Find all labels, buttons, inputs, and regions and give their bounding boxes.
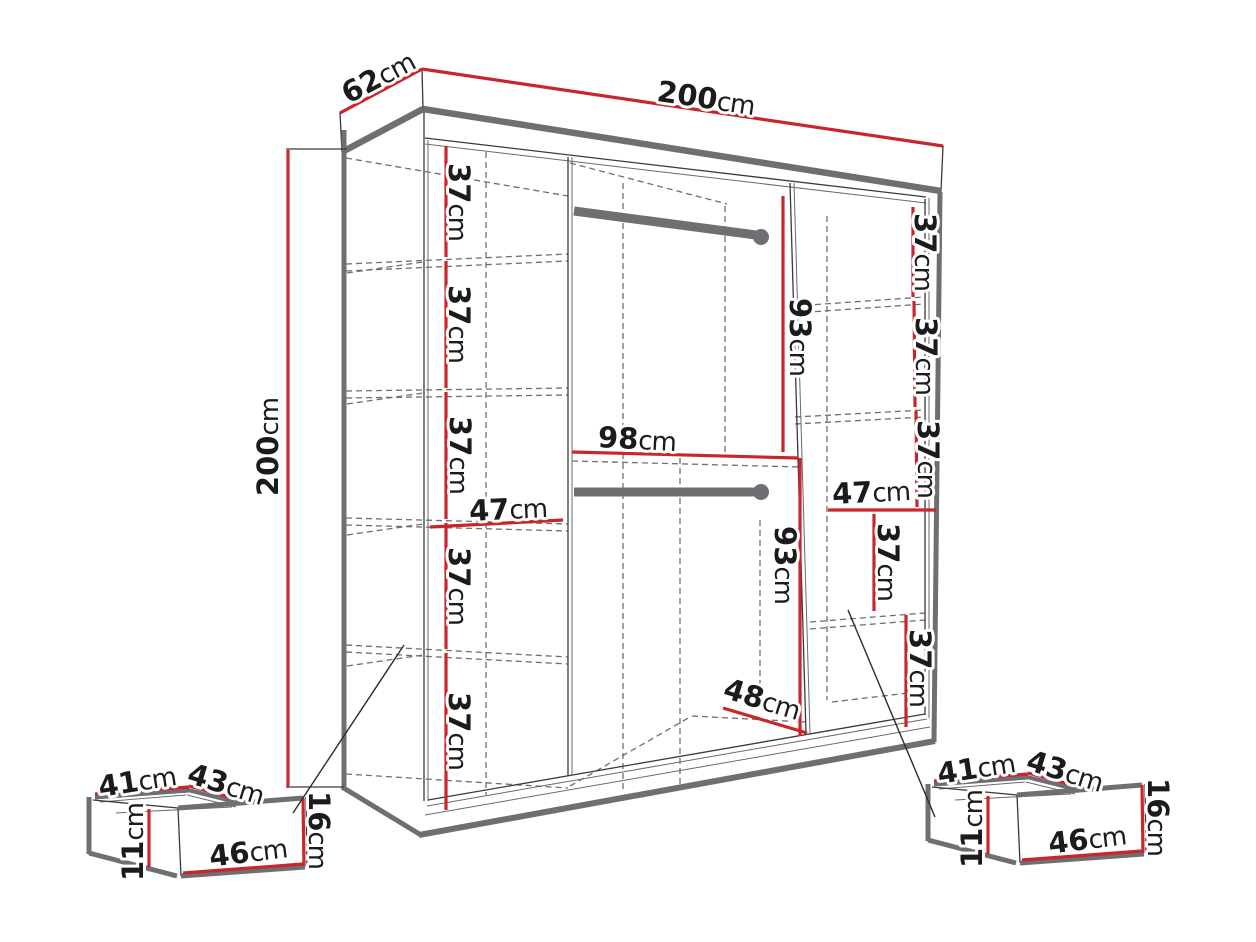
dim-label-right-shelf-2: 37cm: [909, 317, 943, 395]
dim-label-right-shelf-1: 37cm: [908, 213, 942, 291]
dim-label-left-shelf-4: 37cm: [442, 547, 476, 625]
dim-label-left-shelf-3: 37cm: [443, 416, 477, 494]
lower-rod-end: [753, 484, 769, 500]
drawer-right: [928, 743, 1175, 868]
wardrobe-dimension-diagram: 41cm 43cm 46cm 16cm 11cm 62cm 200cm 200c…: [0, 0, 1256, 942]
dim-label-left-shelf-1: 37cm: [442, 163, 476, 241]
dim-label-drawer-16: 16cm: [302, 791, 336, 869]
dim-label-right-width: 47cm: [831, 473, 911, 511]
drawer-left: 41cm 43cm 46cm 16cm 11cm: [89, 756, 336, 881]
dim-label-height: 200cm: [251, 398, 285, 496]
dim-label-right-lower-shelf-1: 37cm: [871, 523, 905, 601]
dim-label-right-shelf-3: 37cm: [911, 420, 945, 498]
dim-label-left-shelf-2: 37cm: [442, 285, 476, 363]
dim-label-drawer-11: 11cm: [116, 803, 150, 881]
dim-label-left-shelf-5: 37cm: [442, 692, 476, 770]
dim-label-right-lower-shelf-2: 37cm: [903, 629, 937, 707]
dim-label-center-lower-height: 93cm: [768, 526, 802, 604]
dim-label-center-upper-height: 93cm: [783, 298, 817, 376]
diagram-canvas: 41cm 43cm 46cm 16cm 11cm 62cm 200cm 200c…: [0, 0, 1256, 942]
dim-label-left-width: 47cm: [468, 490, 548, 528]
upper-rod-end: [753, 229, 769, 245]
